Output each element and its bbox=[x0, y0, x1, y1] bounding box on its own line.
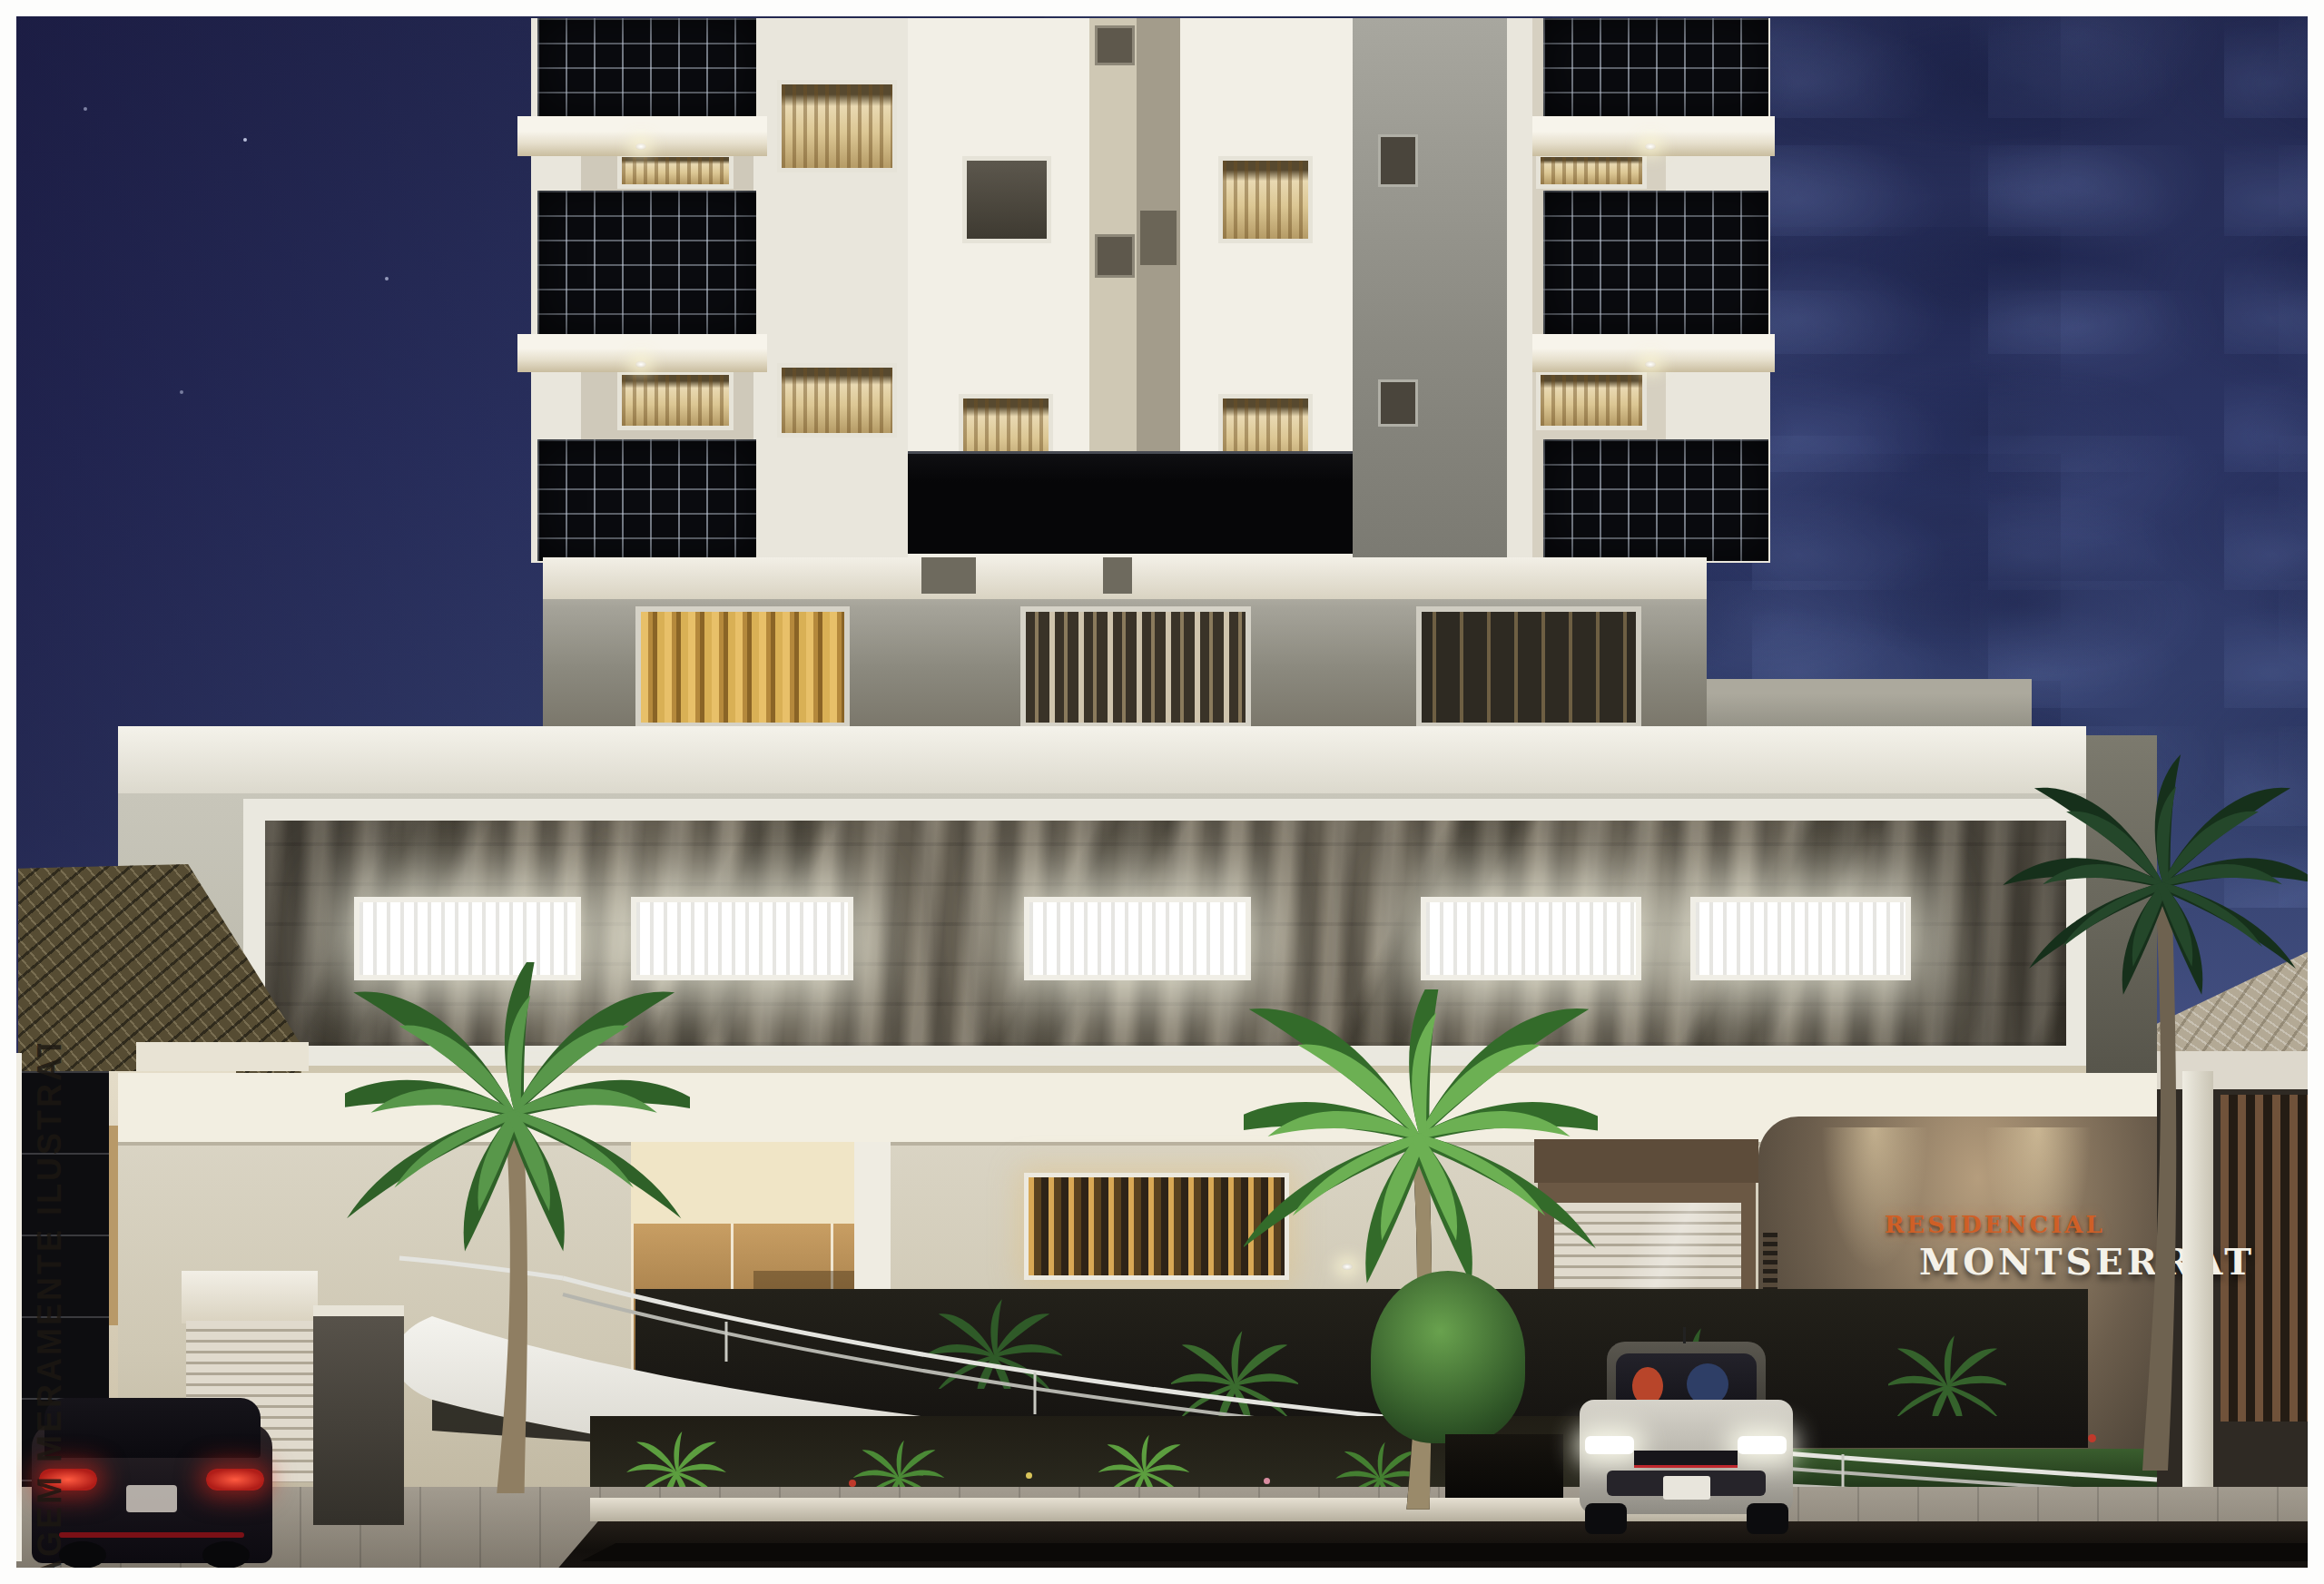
neighbor-garage-header bbox=[182, 1271, 318, 1323]
flower bbox=[849, 1480, 856, 1487]
sedan-antenna bbox=[1683, 1327, 1686, 1343]
shrub-tree bbox=[1371, 1271, 1525, 1443]
tower-window-lit bbox=[1218, 156, 1313, 243]
slab-notch bbox=[921, 557, 976, 594]
sedan-license-plate bbox=[1663, 1476, 1710, 1500]
sedan-headlight-left bbox=[1585, 1436, 1634, 1454]
curtain-window-mixed bbox=[1020, 606, 1251, 728]
mullion-window bbox=[1095, 234, 1135, 278]
star bbox=[180, 390, 183, 394]
slab-notch bbox=[1103, 557, 1132, 594]
tower-window-lit bbox=[777, 80, 897, 172]
balcony-glass-panel bbox=[1543, 18, 1768, 116]
sedan-car bbox=[1580, 1342, 1793, 1537]
balcony-slab bbox=[517, 116, 767, 156]
balcony-recess-window bbox=[1536, 370, 1647, 430]
balcony-glass-panel bbox=[537, 439, 756, 561]
star bbox=[84, 107, 87, 111]
mullion-shadow-box bbox=[1140, 211, 1177, 265]
balcony-glass-panel bbox=[1543, 439, 1768, 561]
watermark-text: IMAGEM MERAMENTE ILUSTRATIVA bbox=[31, 1044, 69, 1568]
neighbor-cornice bbox=[136, 1042, 309, 1071]
star bbox=[385, 277, 389, 280]
balcony-glass-panel bbox=[537, 18, 756, 116]
architectural-render: RESIDENCIAL MONTSERRAT bbox=[0, 0, 2324, 1584]
sedan-grille bbox=[1634, 1451, 1738, 1468]
curtain-window-gold bbox=[635, 606, 850, 728]
balcony-glass-panel bbox=[537, 191, 756, 334]
watermark-container: IMAGEM MERAMENTE ILUSTRATIVA bbox=[18, 1044, 102, 1568]
downlight bbox=[1645, 361, 1656, 368]
balcony-recess-window bbox=[617, 370, 734, 430]
side-window-dark bbox=[1378, 379, 1418, 427]
sedan-headlight-right bbox=[1738, 1436, 1787, 1454]
mullion-window bbox=[1095, 25, 1135, 65]
palm-trunk bbox=[2142, 890, 2176, 1471]
balcony-recess-window bbox=[1536, 152, 1647, 189]
podium-lit-window-5 bbox=[1690, 897, 1911, 980]
tower-side-wall bbox=[1353, 18, 1507, 563]
street-shadow-band bbox=[581, 1543, 2324, 1561]
suv-wheel bbox=[202, 1541, 250, 1569]
suv-license-plate bbox=[126, 1485, 177, 1512]
podium-lit-window-4 bbox=[1421, 897, 1641, 980]
palm-tree-right bbox=[1997, 672, 2324, 1471]
central-balcony-band bbox=[908, 451, 1353, 554]
grass-tuft bbox=[1098, 1434, 1189, 1494]
planter-box-dark bbox=[1445, 1434, 1563, 1498]
suv-taillight-right bbox=[206, 1469, 264, 1491]
downlight bbox=[635, 361, 646, 368]
flower bbox=[1026, 1472, 1032, 1479]
downlight bbox=[1645, 143, 1656, 150]
balcony-slab bbox=[1532, 116, 1775, 156]
palm-tree-left bbox=[345, 962, 690, 1507]
tower-window-lit bbox=[777, 363, 897, 438]
side-window-dark bbox=[1378, 134, 1418, 187]
balcony-recess-window bbox=[617, 152, 734, 189]
sedan-wheel bbox=[1747, 1503, 1788, 1534]
podium-top-band bbox=[118, 726, 2086, 793]
podium-lit-window-3 bbox=[1024, 897, 1251, 980]
tower-window-dark bbox=[962, 156, 1051, 243]
balcony-glass-panel bbox=[1543, 191, 1768, 334]
star bbox=[243, 138, 247, 142]
curtain-window-dim bbox=[1416, 606, 1641, 728]
downlight bbox=[635, 143, 646, 150]
sedan-wheel bbox=[1585, 1503, 1627, 1534]
